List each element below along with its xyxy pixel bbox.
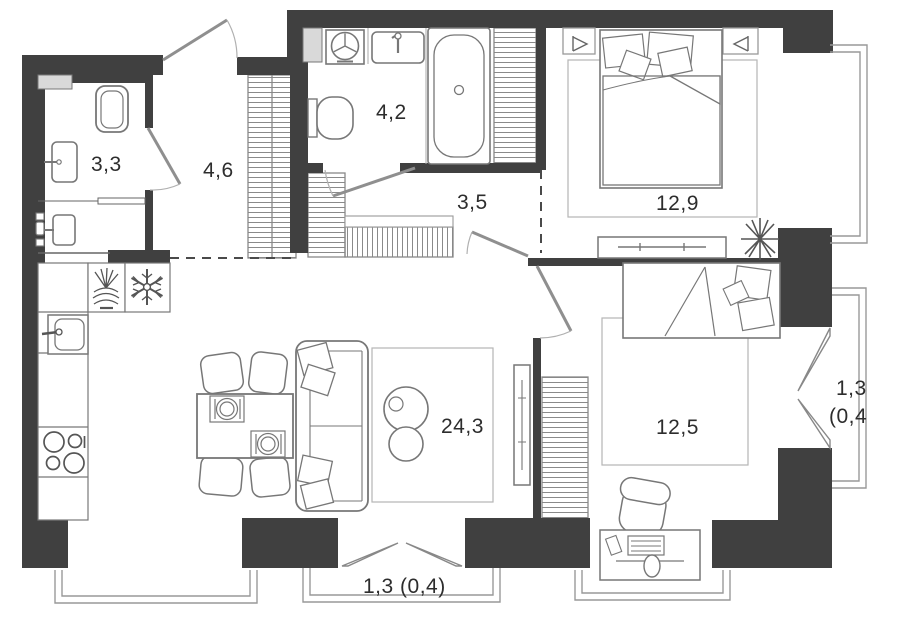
bedroom-door-leaf <box>472 232 528 256</box>
wall-bottom-a <box>242 518 338 568</box>
floor-plan: 3,3 4,6 4,2 3,5 12,9 24,3 12,5 1,3 (0,4 … <box>0 0 900 640</box>
wall-bath1-bottom <box>108 250 170 263</box>
coffee-table-small <box>389 427 423 461</box>
place-setting <box>251 431 285 457</box>
coffee-tables <box>384 387 428 461</box>
bathroom1-door-leaf <box>148 128 180 184</box>
main-bathroom-fixtures <box>308 28 490 164</box>
bottom-balcony-door-leaf-left <box>342 543 398 566</box>
vent-window-left <box>563 28 595 54</box>
bathroom1-door-arc <box>150 184 180 190</box>
bathroom-side-closet <box>494 28 536 164</box>
wall-corner-bl <box>22 520 68 568</box>
wall-bedroom-left <box>536 10 546 170</box>
label-side-balcony-2: (0,4 <box>829 405 867 428</box>
sofa <box>296 341 368 511</box>
window-sill-left <box>55 570 257 603</box>
label-bathroom-guest: 3,3 <box>91 153 122 176</box>
label-hallway: 4,6 <box>203 159 234 182</box>
bedroom-door-arc <box>467 232 472 254</box>
wall-bath1-top <box>72 75 153 83</box>
entry-door-leaf <box>163 20 227 60</box>
keyboard-icon <box>628 536 664 555</box>
wall-bath1-right-b <box>145 190 153 253</box>
wall-bath1-right-a <box>145 75 153 128</box>
hall-shelf <box>345 216 453 227</box>
wall-right-mid <box>778 228 832 327</box>
hall-wardrobe-bottom <box>345 227 453 257</box>
mouse-icon <box>644 555 660 577</box>
wall-right-lower <box>778 448 832 568</box>
bedroom2-door-leaf <box>537 266 571 331</box>
wall-tap-b <box>36 239 44 246</box>
bedroom2-rug <box>602 318 748 465</box>
vent-shaft-bath2 <box>303 28 322 62</box>
chair <box>198 455 243 497</box>
floor-plan-canvas: 3,3 4,6 4,2 3,5 12,9 24,3 12,5 1,3 (0,4 … <box>0 0 900 640</box>
wall-top <box>287 10 833 28</box>
chair <box>200 351 245 394</box>
wall-bath2-bottom-a <box>308 163 323 173</box>
wall-tap-a <box>36 213 44 220</box>
chair <box>249 456 291 498</box>
tv-panel <box>514 365 530 485</box>
label-kitchen-living: 24,3 <box>441 415 484 438</box>
kitchen <box>38 263 170 520</box>
bedroom2-door-arc <box>540 331 571 338</box>
wall-entry <box>22 55 163 75</box>
entry-door-arc <box>227 20 237 58</box>
toilet-bowl <box>101 91 123 128</box>
kitchen-faucet-knob <box>56 329 62 335</box>
bottom-balcony-door-leaf-right <box>406 543 462 566</box>
kitchen-counter <box>38 263 88 520</box>
label-bedroom-master: 12,9 <box>656 192 699 215</box>
label-bottom-balcony: 1,3 (0,4) <box>363 575 446 598</box>
label-bedroom-second: 12,5 <box>656 416 699 439</box>
utility-faucet-handle <box>36 222 44 235</box>
desk-chair <box>613 476 672 538</box>
place-setting <box>210 396 244 422</box>
washbasin-faucet-tip <box>57 160 61 164</box>
bed-pillow <box>738 297 774 330</box>
label-hall: 3,5 <box>457 191 488 214</box>
dining-set <box>197 351 293 498</box>
utility-basin-icon <box>53 215 75 245</box>
master-bedroom <box>598 30 779 260</box>
wall-corner-tr <box>783 10 833 53</box>
wall-bottom-b <box>465 518 590 568</box>
toilet2-bowl <box>317 97 353 139</box>
hall-wardrobe-vertical <box>308 173 345 257</box>
plant-icon <box>741 218 779 260</box>
terrace-outline <box>830 45 867 243</box>
chair <box>248 351 289 395</box>
toilet2-tank <box>308 99 317 137</box>
label-bathroom-main: 4,2 <box>376 101 407 124</box>
vanity-faucet-head <box>395 33 401 39</box>
side-balcony-door-leaf-top <box>798 328 830 391</box>
side-balcony-door-leaf-bottom <box>798 399 830 448</box>
vent-shaft-bath1 <box>38 75 72 89</box>
bathtub-icon <box>428 28 490 164</box>
bedroom2-wardrobe <box>542 377 588 520</box>
label-side-balcony-1: 1,3 <box>836 377 867 400</box>
wall-bottom-c <box>712 520 778 568</box>
